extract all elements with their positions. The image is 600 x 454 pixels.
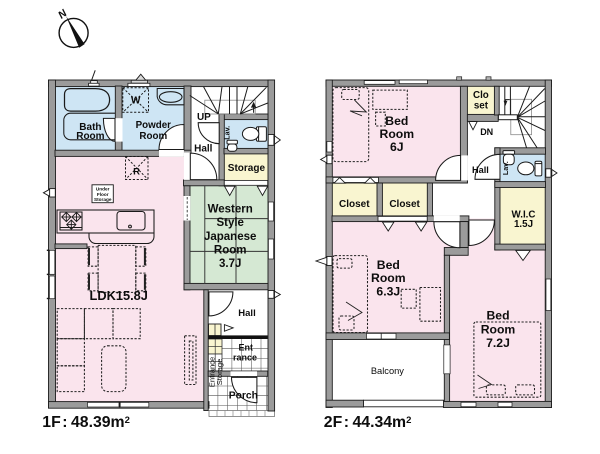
svg-text:7.2J: 7.2J	[486, 336, 510, 350]
svg-text:Western: Western	[208, 204, 253, 216]
svg-text:Style: Style	[216, 217, 244, 229]
svg-text:1.5J: 1.5J	[514, 219, 533, 230]
svg-text:Ent: Ent	[238, 342, 253, 352]
svg-text:Storage: Storage	[228, 163, 266, 174]
svg-text:UP: UP	[197, 112, 211, 123]
svg-text:Closet: Closet	[339, 199, 370, 210]
svg-text:rance: rance	[233, 352, 257, 362]
svg-text:W: W	[131, 96, 141, 107]
svg-text:Lav.: Lav.	[222, 126, 231, 140]
svg-text:Storage: Storage	[215, 359, 224, 386]
svg-text:6J: 6J	[390, 140, 404, 154]
svg-text:Room: Room	[214, 244, 247, 256]
svg-text:Hall: Hall	[472, 165, 489, 175]
svg-text:DN: DN	[480, 127, 493, 137]
svg-text:Closet: Closet	[389, 199, 420, 210]
svg-text:Porch: Porch	[229, 391, 258, 402]
svg-text:Hall: Hall	[194, 143, 213, 154]
svg-text:LDK15.8J: LDK15.8J	[90, 288, 148, 303]
svg-text:2F:44.34m2: 2F:44.34m2	[324, 414, 412, 431]
svg-text:6.3J: 6.3J	[376, 284, 400, 298]
svg-text:1F:48.39m2: 1F:48.39m2	[42, 414, 130, 431]
svg-text:Bed: Bed	[385, 114, 408, 128]
svg-text:Storage: Storage	[94, 197, 112, 202]
svg-text:Bed: Bed	[377, 258, 400, 272]
svg-text:Hall: Hall	[238, 308, 255, 319]
svg-text:Room: Room	[481, 322, 516, 336]
svg-text:Lav.: Lav.	[501, 161, 510, 175]
svg-text:Powder: Powder	[136, 120, 172, 131]
svg-text:Bed: Bed	[486, 308, 509, 322]
svg-text:set: set	[474, 100, 489, 111]
svg-text:Balcony: Balcony	[371, 366, 404, 376]
svg-text:Room: Room	[371, 271, 406, 285]
svg-text:R: R	[133, 167, 140, 178]
svg-text:Room: Room	[139, 131, 167, 142]
svg-text:Room: Room	[76, 131, 104, 142]
svg-text:Japanese: Japanese	[204, 231, 256, 243]
svg-text:Clo: Clo	[473, 90, 489, 101]
svg-text:3.7J: 3.7J	[219, 258, 241, 270]
